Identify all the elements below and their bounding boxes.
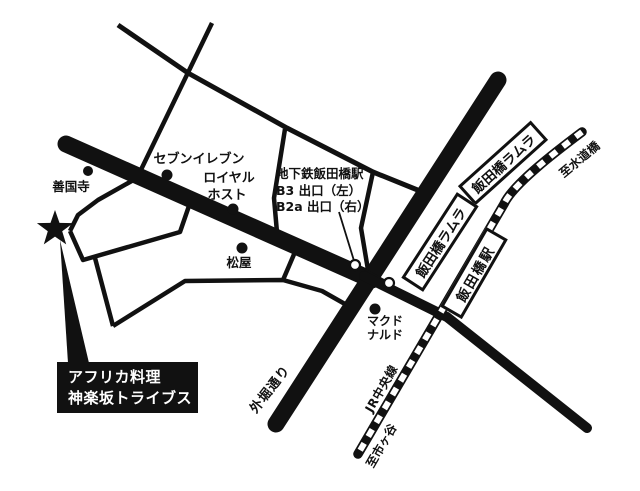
label-mcdonalds-line2: ナルド [367, 329, 403, 343]
access-map: セブンイレブン ロイヤル ホスト 善国寺 松屋 マクド ナルド 地下鉄飯田橋駅 … [0, 0, 640, 491]
label-royal-host-line1: ロイヤル [203, 172, 255, 186]
poi-dot-mcdonalds-icon [370, 304, 381, 315]
back-street-zenkokuji-block [70, 203, 190, 260]
exit-circle-b3-icon [350, 260, 360, 270]
label-mcdonalds: マクド ナルド [367, 315, 403, 342]
destination-callout-line1: アフリカ料理 [68, 367, 198, 388]
poi-dot-zenkokuji-icon [83, 166, 93, 176]
subway-exit-note-b3: B3 出口（左） [276, 183, 370, 200]
poi-dot-matsuya-icon [237, 243, 248, 254]
back-street-matsuya-connector [283, 252, 295, 280]
poi-dot-seven-eleven-icon [162, 170, 173, 181]
southeast-road [364, 276, 587, 428]
exit-circle-b2a-icon [384, 278, 394, 288]
back-street-upper-diagonal [118, 25, 425, 193]
destination-callout: アフリカ料理 神楽坂トライブス [57, 362, 198, 413]
destination-star-icon [37, 210, 73, 244]
subway-exit-note-b2a: B2a 出口（右） [276, 199, 370, 216]
back-street-matsuya-block [113, 280, 352, 326]
label-mcdonalds-line1: マクド [367, 315, 403, 329]
subway-exit-note-title: 地下鉄飯田橋駅 [276, 166, 370, 183]
map-canvas [0, 0, 640, 491]
subway-exit-note: 地下鉄飯田橋駅 B3 出口（左） B2a 出口（右） [276, 166, 370, 216]
label-zenkokuji: 善国寺 [52, 180, 90, 194]
destination-callout-line2: 神楽坂トライブス [68, 388, 198, 409]
label-matsuya: 松屋 [226, 256, 251, 270]
poi-dot-royal-host-icon [228, 204, 239, 215]
back-street-star-south [95, 258, 113, 326]
label-seven-eleven: セブンイレブン [153, 153, 244, 167]
label-royal-host-line2: ホスト [207, 189, 246, 203]
